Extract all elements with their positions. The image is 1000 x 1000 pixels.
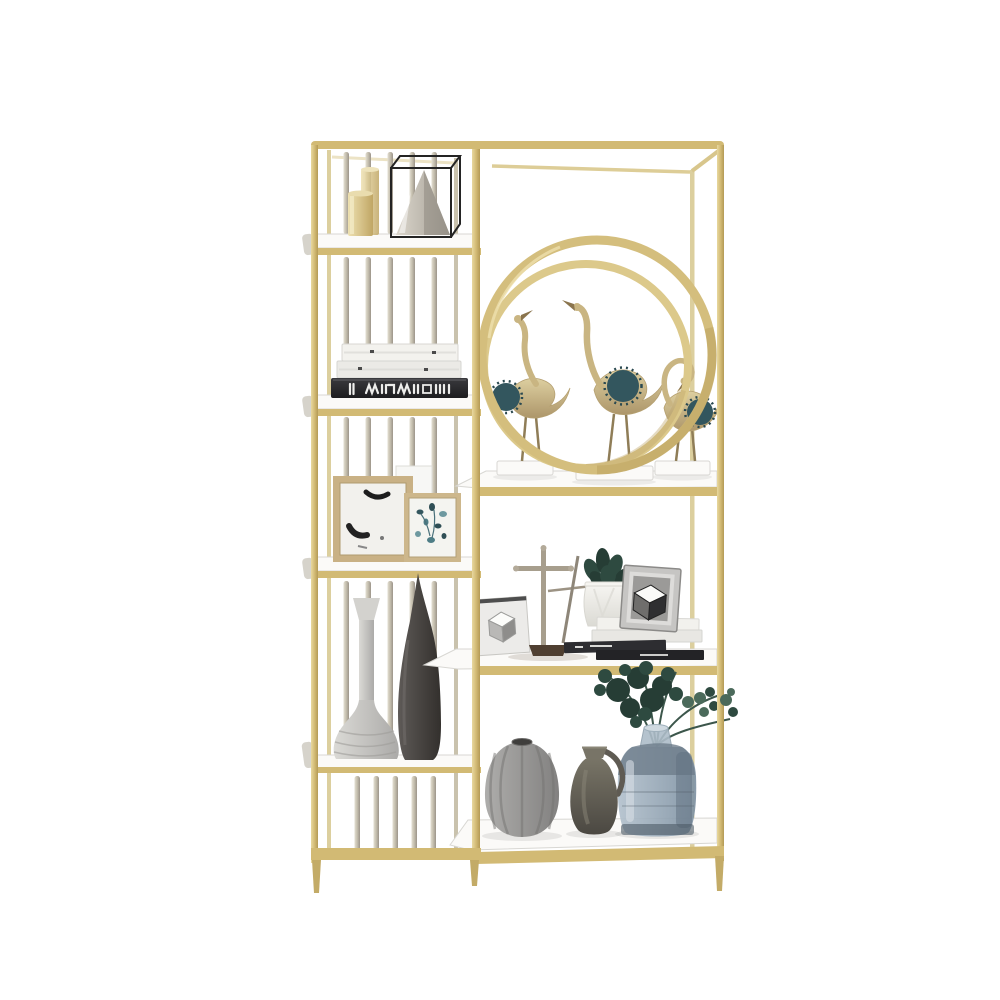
shelf-left-4-bar (311, 767, 481, 773)
left-vases (334, 573, 441, 760)
foot-3 (715, 856, 724, 891)
middle-shelf-decor (475, 545, 704, 661)
decor-rings (482, 240, 712, 470)
foot-1 (312, 860, 321, 893)
top-depth-edge (692, 149, 721, 171)
top-rail (311, 141, 724, 149)
product-photo-stage (0, 0, 1000, 1000)
top-shelf-decor (348, 156, 460, 237)
leaf-front-3 (727, 688, 735, 696)
jug-vase (570, 747, 622, 835)
photo-frame-large (333, 476, 413, 562)
back-left-post (327, 150, 331, 856)
crane-left (490, 310, 570, 461)
cube-art-card (475, 596, 530, 655)
crane-base-right (655, 461, 710, 475)
back-top-rail (492, 166, 690, 172)
shelf-left-1-bar (311, 248, 481, 255)
front-right-post (717, 145, 724, 861)
photo-frames (333, 466, 461, 562)
pumpkin-vase (485, 739, 559, 838)
shelf-left-3-bar (311, 571, 481, 578)
glass-box-pyramid (391, 156, 460, 237)
book-stack-left (331, 344, 468, 398)
front-left-post (311, 145, 318, 863)
bottom-rail-left (311, 848, 481, 860)
back-right-post (690, 170, 695, 848)
gold-canister (348, 167, 379, 236)
foot-2 (470, 860, 479, 886)
front-divider-post (472, 149, 480, 855)
shelf-crane-bar (472, 487, 724, 496)
etagere-illustration (0, 0, 1000, 1000)
photo-frame-small (404, 493, 461, 562)
leaf-front-2 (728, 707, 738, 717)
shelf-left-2-bar (311, 409, 481, 416)
cube-art-frame (620, 565, 681, 632)
rod-section-bottom (355, 776, 437, 850)
